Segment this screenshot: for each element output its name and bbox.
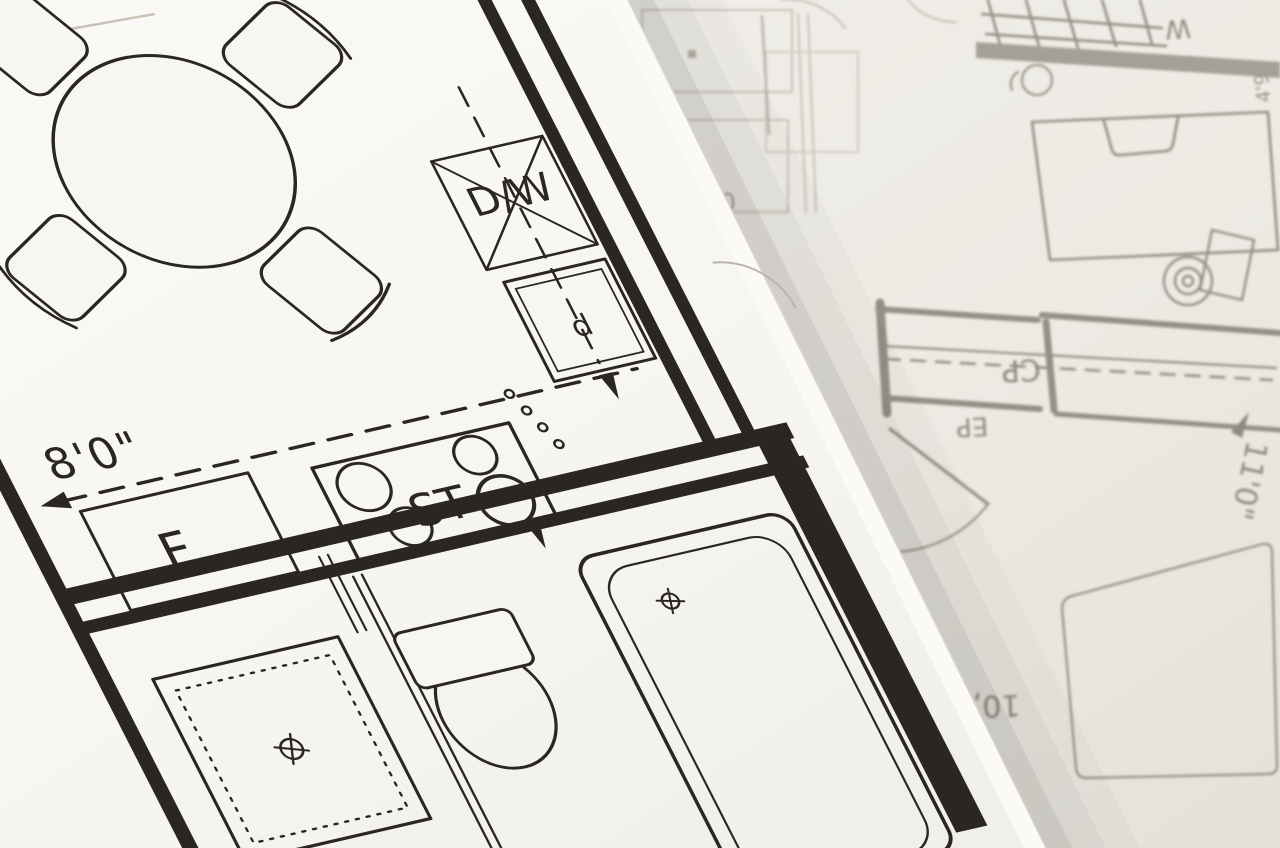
blueprint-canvas: 0,9 W 4'9	[0, 0, 1280, 848]
closet-label: CP	[1001, 351, 1042, 388]
entry-label: EP	[955, 410, 989, 442]
dim-label-side: 4'9	[1250, 72, 1275, 104]
washer-label: W	[1164, 12, 1192, 44]
blueprint-photo: 0,9 W 4'9	[0, 0, 1280, 848]
